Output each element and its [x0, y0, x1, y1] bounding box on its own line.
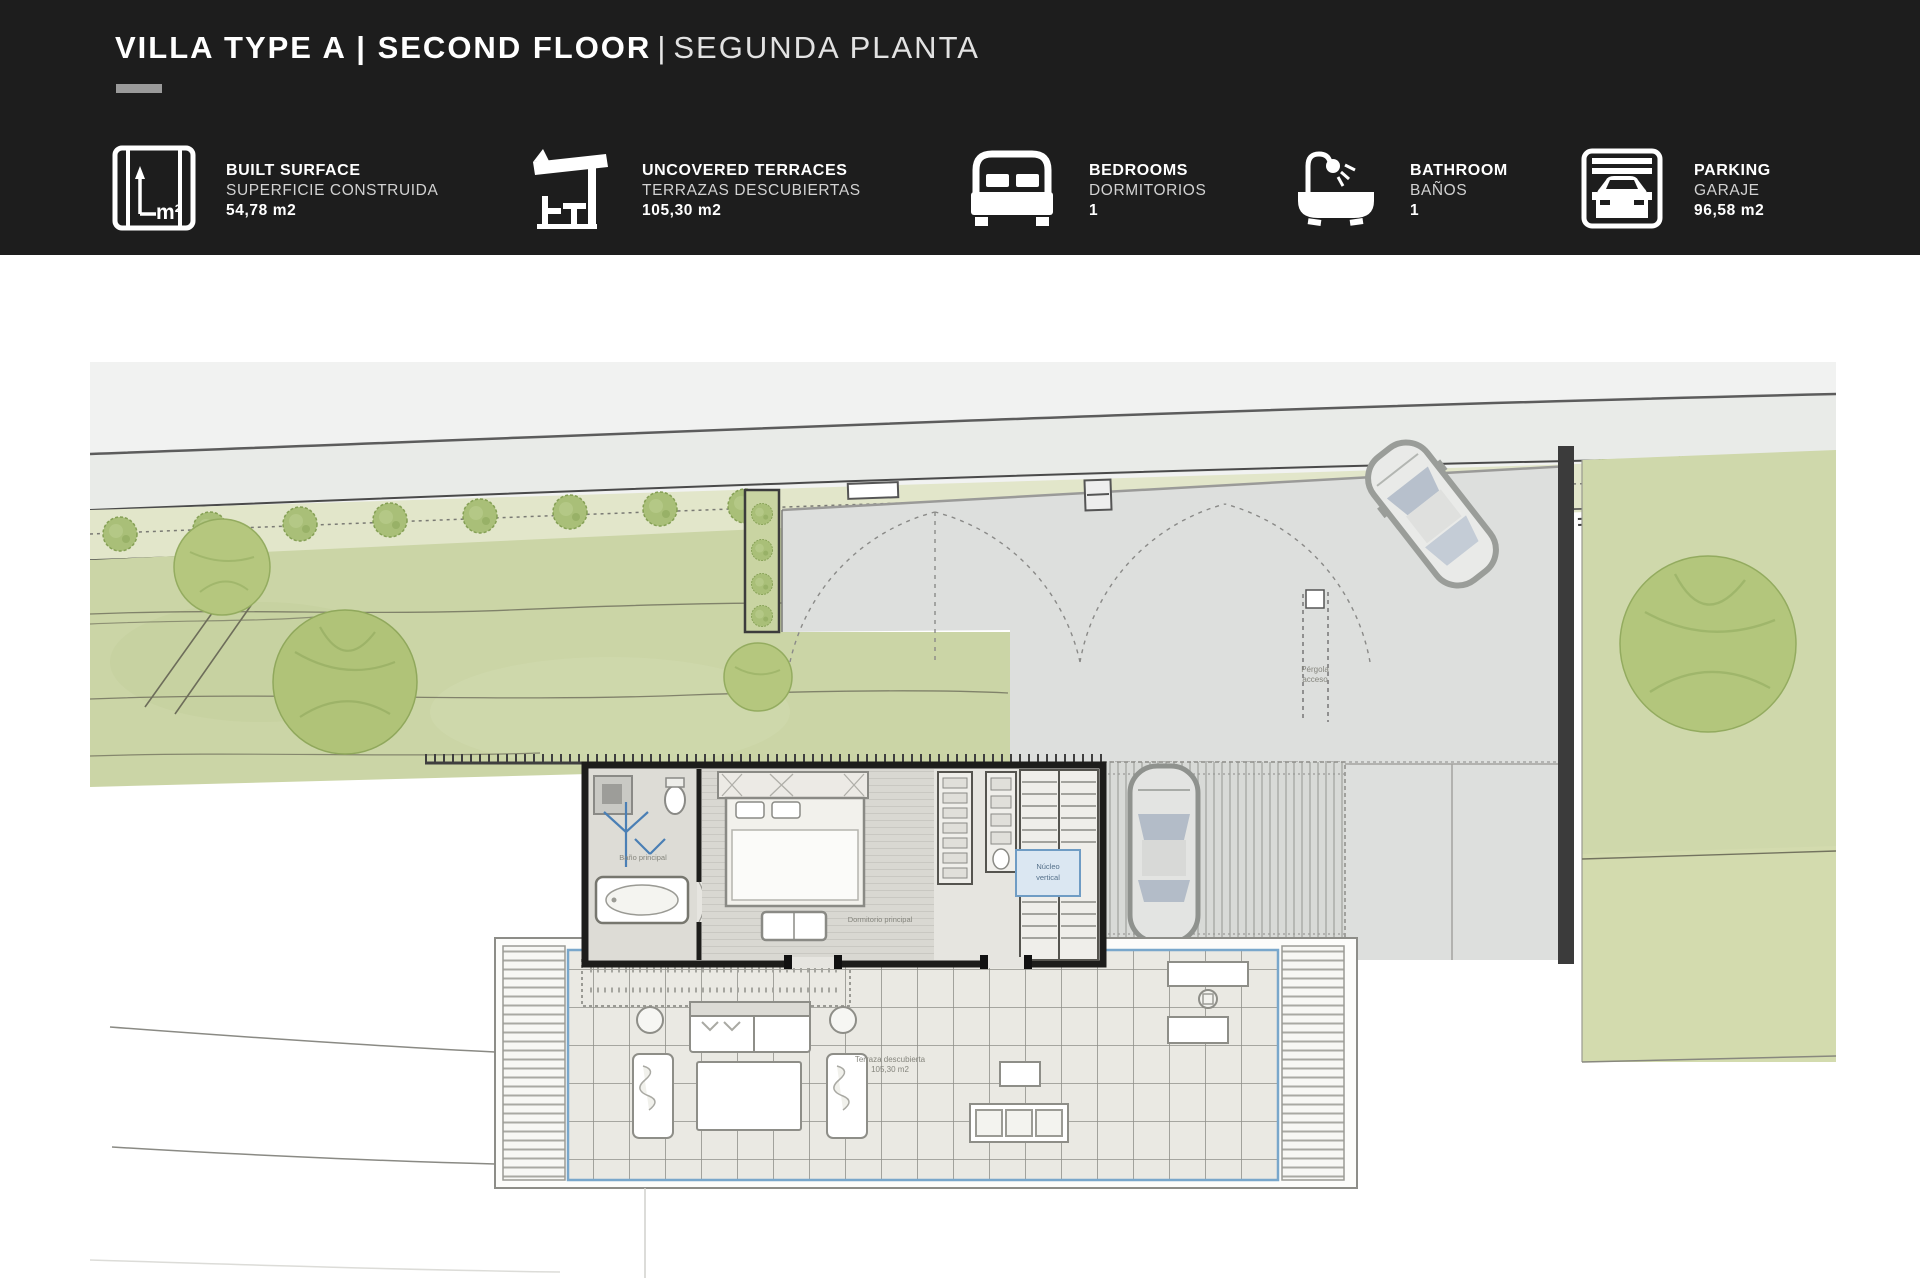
floor-plan: Pérgola acceso	[90, 362, 1836, 1280]
planter-strip	[745, 490, 779, 632]
tree	[1620, 556, 1796, 732]
side-table	[637, 1007, 663, 1033]
garage-car-icon	[1580, 142, 1664, 239]
pergola-label-2: acceso	[1302, 675, 1328, 684]
stairs-core-label-box: Núcleo vertical	[1016, 850, 1080, 896]
toilet	[665, 786, 685, 814]
stat-label-en: BUILT SURFACE	[226, 161, 438, 181]
bedroom: Dormitorio principal	[702, 769, 934, 960]
stat-value: 96,58 m2	[1694, 201, 1771, 221]
stat-bedrooms: BEDROOMS DORMITORIOS 1	[965, 142, 1206, 239]
staircase: Núcleo vertical	[1016, 770, 1098, 960]
bathroom: Baño principal	[589, 769, 697, 960]
stairs-label-2: vertical	[1036, 873, 1060, 882]
stat-bathroom: BATHROOM BAÑOS 1	[1292, 142, 1508, 239]
stat-label-en: PARKING	[1694, 161, 1771, 181]
blueprint-m2-icon: m²	[112, 142, 196, 239]
terrace-area-label: 105,30 m2	[871, 1065, 909, 1074]
stat-parking: PARKING GARAJE 96,58 m2	[1580, 142, 1771, 239]
stat-label-es: DORMITORIOS	[1089, 181, 1206, 201]
tree	[724, 643, 792, 711]
sun-lounger	[633, 1054, 673, 1138]
tree	[273, 610, 417, 754]
terrace-deck: Terraza descubierta 105,30 m2	[495, 938, 1357, 1188]
deck-slats-right	[1282, 946, 1344, 1180]
terrace-label: Terraza descubierta	[855, 1055, 926, 1064]
parked-car-icon	[1130, 766, 1198, 942]
stat-value: 105,30 m2	[642, 201, 861, 221]
carport-pergola	[1103, 762, 1345, 944]
pergola-label: Pérgola	[1301, 665, 1329, 674]
deck-slats-left	[503, 946, 565, 1180]
stat-label-es: BAÑOS	[1410, 181, 1508, 201]
page-title: VILLA TYPE A | SECOND FLOOR|SEGUNDA PLAN…	[115, 30, 980, 66]
page-title-main: VILLA TYPE A | SECOND FLOOR	[115, 30, 651, 65]
bed-icon	[965, 142, 1059, 239]
floor-plan-svg: Pérgola acceso	[90, 362, 1836, 1280]
side-table	[830, 1007, 856, 1033]
stat-value: 1	[1410, 201, 1508, 221]
bathroom-label: Baño principal	[619, 853, 667, 862]
bathtub-icon	[1292, 142, 1380, 239]
entrance-plate	[848, 482, 898, 499]
daybed	[697, 1062, 801, 1130]
stairs-label-1: Núcleo	[1036, 862, 1059, 871]
stat-label-es: TERRAZAS DESCUBIERTAS	[642, 181, 861, 201]
header-bar: VILLA TYPE A | SECOND FLOOR|SEGUNDA PLAN…	[0, 0, 1920, 255]
stat-label-en: UNCOVERED TERRACES	[642, 161, 861, 181]
title-underline-dash	[116, 84, 162, 93]
right-lawn	[1582, 450, 1836, 1062]
tree	[174, 519, 270, 615]
stat-label-en: BEDROOMS	[1089, 161, 1206, 181]
svg-text:m²: m²	[156, 201, 182, 224]
stat-label-en: BATHROOM	[1410, 161, 1508, 181]
stat-label-es: SUPERFICIE CONSTRUIDA	[226, 181, 438, 201]
page-title-sub: SEGUNDA PLANTA	[673, 30, 980, 65]
sun-lounger	[827, 1054, 867, 1138]
stat-value: 54,78 m2	[226, 201, 438, 221]
hall-cabinet	[986, 772, 1016, 872]
boundary-wall	[1558, 446, 1574, 964]
pillow	[772, 802, 800, 818]
pillow	[736, 802, 764, 818]
stat-label-es: GARAJE	[1694, 181, 1771, 201]
title-separator: |	[651, 30, 673, 65]
wardrobe	[938, 772, 972, 884]
stat-value: 1	[1089, 201, 1206, 221]
stat-uncovered-terraces: UNCOVERED TERRACES TERRAZAS DESCUBIERTAS…	[528, 142, 861, 239]
bathtub	[596, 877, 688, 923]
bedroom-label: Dormitorio principal	[848, 915, 913, 924]
outdoor-sofa	[690, 1002, 810, 1052]
building: Baño principal Dormitorio principal	[585, 765, 1103, 969]
stat-built-surface: m² BUILT SURFACE SUPERFICIE CONSTRUIDA 5…	[112, 142, 438, 239]
pergola-icon	[528, 142, 612, 239]
